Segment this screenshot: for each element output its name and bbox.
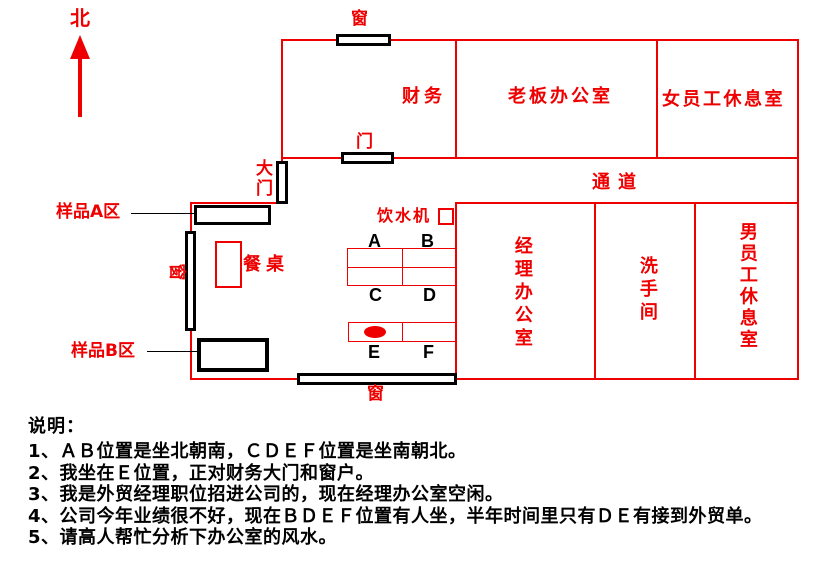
wall-bottom: [190, 378, 799, 380]
wall-boss-lounge-divider: [656, 39, 658, 159]
door-label: 门: [356, 134, 373, 152]
corridor-label: 通道: [592, 174, 644, 193]
notes-title: 说明：: [28, 417, 763, 437]
seat-a-label: A: [368, 231, 381, 252]
room-manager-office-label: 经理办公室: [512, 236, 531, 351]
seat-d-label: D: [423, 285, 436, 306]
wall-washroom-lounge-divider: [694, 202, 696, 380]
window-left: [185, 231, 196, 331]
desk-abcd: [347, 248, 456, 286]
sample-b-shelf: [197, 338, 269, 372]
main-gate-label: 大门: [256, 159, 276, 199]
sample-a-label: 样品A区: [56, 204, 120, 222]
window-top-label: 窗: [351, 11, 368, 29]
wall-corridor-south: [455, 202, 799, 204]
room-boss-office-label: 老板办公室: [508, 88, 613, 107]
note-line-1: 1、ＡＢ位置是坐北朝南，ＣＤＥＦ位置是坐南朝北。: [28, 441, 763, 463]
room-female-lounge-label: 女员工休息室: [662, 91, 785, 110]
note-line-3: 3、我是外贸经理职位招进公司的，现在经理办公室空闲。: [28, 484, 763, 506]
room-finance-label: 财务: [402, 88, 446, 107]
note-line-2: 2、我坐在Ｅ位置，正对财务大门和窗户。: [28, 463, 763, 485]
main-gate: [276, 161, 288, 204]
window-bottom-label: 窗: [367, 386, 384, 404]
note-line-5: 5、请高人帮忙分析下办公室的风水。: [28, 527, 763, 549]
notes-block: 说明： 1、ＡＢ位置是坐北朝南，ＣＤＥＦ位置是坐南朝北。 2、我坐在Ｅ位置，正对…: [28, 417, 763, 549]
wall-right: [797, 39, 799, 380]
wall-manager-washroom-divider: [594, 202, 596, 380]
wall-finance-boss-divider: [455, 39, 457, 159]
desk-abcd-divider-horizontal: [348, 267, 455, 268]
sample-b-label: 样品B区: [71, 343, 135, 361]
room-washroom-label: 洗手间: [637, 256, 656, 325]
water-dispenser-label: 饮水机: [377, 208, 431, 225]
sample-a-connector-line: [131, 213, 195, 214]
room-male-lounge-label: 男员工休息室: [737, 222, 756, 351]
window-top: [336, 34, 391, 46]
door-finance: [341, 152, 394, 164]
my-seat-marker: [364, 326, 386, 338]
seat-f-label: F: [423, 342, 434, 363]
wall-left-top: [190, 202, 283, 204]
seat-b-label: B: [421, 231, 434, 252]
wall-manager-west: [455, 202, 457, 380]
water-dispenser: [438, 208, 454, 225]
north-label: 北: [70, 8, 90, 29]
dining-table: [215, 241, 242, 288]
seat-c-label: C: [369, 285, 382, 306]
desk-ef-divider-vertical: [402, 323, 403, 341]
window-left-label: 窗: [167, 263, 185, 280]
sample-a-shelf: [194, 205, 271, 225]
seat-e-label: E: [368, 342, 380, 363]
sample-b-connector-line: [147, 351, 198, 352]
north-arrow-icon: [58, 34, 102, 120]
note-line-4: 4、公司今年业绩很不好，现在ＢＤＥＦ位置有人坐，半年时间里只有ＤＥ有接到外贸单。: [28, 506, 763, 528]
dining-table-label: 餐桌: [243, 256, 289, 275]
